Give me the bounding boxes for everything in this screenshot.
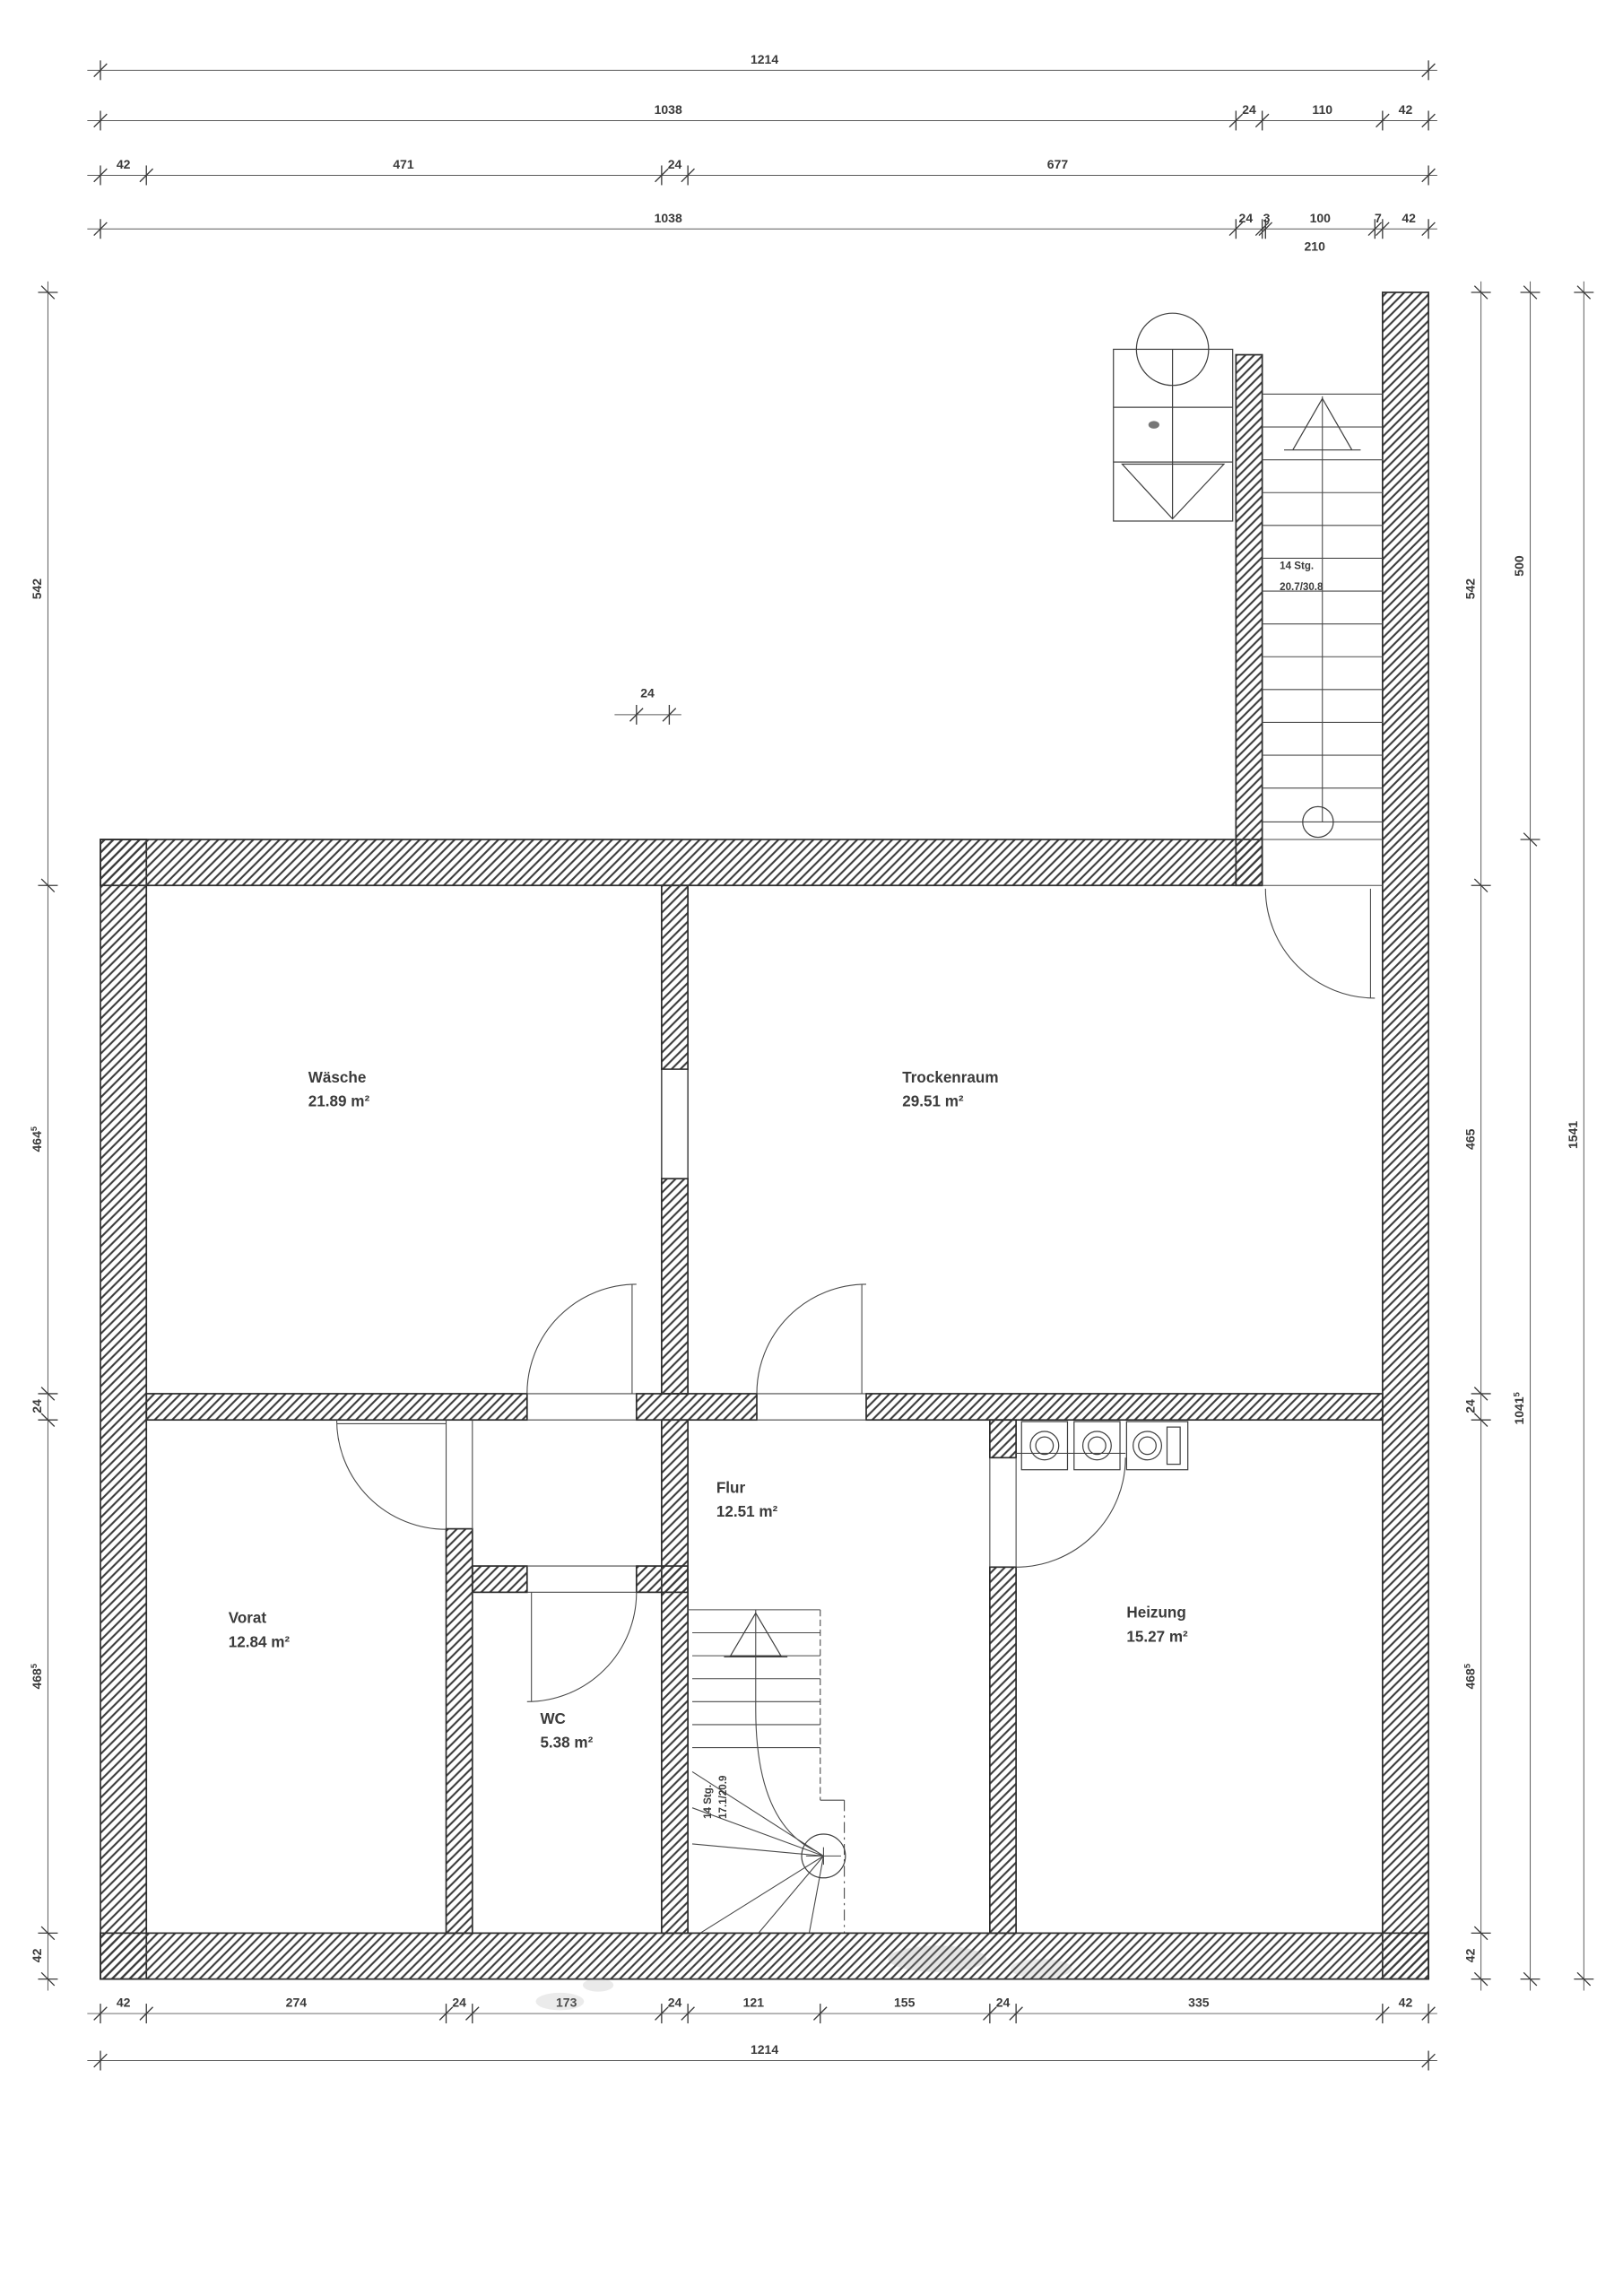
door-heizung — [1016, 1453, 1125, 1567]
dim-468-5: 4685 — [1462, 1664, 1477, 1689]
wall-top — [100, 839, 1263, 885]
dim-335: 335 — [1188, 1996, 1210, 2010]
room-name-waesche: Wäsche — [308, 1069, 367, 1086]
room-area-waesche: 21.89 m² — [308, 1093, 370, 1110]
walls — [100, 292, 1428, 1979]
plan: 14 Stg. 20.7/30.8 — [30, 52, 1593, 2070]
dim-24: 24 — [996, 1996, 1011, 2010]
wall-middle-b — [637, 1394, 757, 1420]
room-name-trockenraum: Trockenraum — [902, 1069, 998, 1086]
wall-divider-lower — [662, 1420, 688, 1933]
dim-42: 42 — [1399, 102, 1413, 117]
wall-thickness-marker: 24 — [614, 685, 681, 725]
dim-42: 42 — [1402, 211, 1416, 225]
dim-464-5: 4645 — [30, 1126, 44, 1152]
dim-468-5: 4685 — [30, 1664, 44, 1689]
dim-465: 465 — [1462, 1128, 1477, 1150]
room-name-flur: Flur — [716, 1479, 746, 1496]
chimney — [1114, 313, 1233, 521]
equipment-rect — [1167, 1427, 1181, 1464]
wall-middle-a — [146, 1394, 527, 1420]
wall-divider-mid — [662, 1178, 688, 1394]
wall-vorat — [447, 1529, 473, 1934]
wall-divider-upper — [662, 885, 688, 1069]
dim-3: 3 — [1263, 211, 1271, 225]
dim-24: 24 — [1239, 211, 1254, 225]
door-vorat — [337, 1420, 447, 1529]
dim-121: 121 — [743, 1996, 765, 2010]
dim-471: 471 — [393, 157, 414, 171]
room-area-flur: 12.51 m² — [716, 1503, 778, 1520]
dim-100: 100 — [1310, 211, 1332, 225]
washer-box — [1126, 1422, 1187, 1470]
dim-bottom: 42 274 24 173 24 121 155 24 335 42 1214 — [87, 1996, 1436, 2071]
door-shaft-trockenraum — [1265, 889, 1375, 998]
heizung-equipment — [1021, 1422, 1187, 1470]
dim-274: 274 — [286, 1996, 308, 2010]
dim-24: 24 — [668, 157, 682, 171]
dim-24: 24 — [452, 1996, 466, 2010]
room-area-wc: 5.38 m² — [540, 1735, 593, 1752]
interior-stair-label: 14 Stg. — [703, 1785, 714, 1819]
dim-500: 500 — [1512, 555, 1526, 577]
dim-155: 155 — [894, 1996, 916, 2010]
dim-42: 42 — [117, 157, 131, 171]
dim-1214-bottom: 1214 — [751, 2042, 778, 2057]
dim-42: 42 — [1399, 1996, 1413, 2010]
wall-middle-c — [866, 1394, 1383, 1420]
door-trockenraum — [757, 1284, 866, 1394]
room-name-vorat: Vorat — [229, 1610, 267, 1627]
interior-stair: 14 Stg. 17.1/20.9 — [688, 1610, 846, 1933]
door-wc — [527, 1592, 637, 1701]
dim-110: 110 — [1312, 102, 1332, 117]
room-name-heizung: Heizung — [1126, 1604, 1185, 1621]
interior-stair-ratio: 17.1/20.9 — [718, 1775, 729, 1819]
wall-wc-b — [637, 1566, 688, 1592]
wall-stair-shaft — [1236, 355, 1262, 886]
dim-24: 24 — [30, 1399, 44, 1413]
wall-heizung-a — [990, 1420, 1016, 1457]
dim-24: 24 — [1242, 102, 1256, 117]
dim-1038: 1038 — [655, 102, 682, 117]
wall-divider-light — [662, 1069, 688, 1178]
exterior-stair: 14 Stg. 20.7/30.8 — [1263, 394, 1383, 837]
dim-42: 42 — [117, 1996, 131, 2010]
dim-677: 677 — [1047, 157, 1069, 171]
wall-left — [100, 839, 146, 1979]
dim-7: 7 — [1375, 211, 1382, 225]
dim-left: 542 4645 24 4685 42 — [30, 282, 57, 1991]
thresholds — [447, 839, 1383, 1592]
room-area-trockenraum: 29.51 m² — [902, 1093, 964, 1110]
washer-box — [1021, 1422, 1067, 1470]
marker-label: 24 — [640, 685, 655, 700]
dim-1041-5: 10415 — [1512, 1392, 1526, 1424]
scan-mark — [1149, 421, 1159, 429]
dim-1038: 1038 — [655, 211, 682, 225]
dim-24: 24 — [668, 1996, 682, 2010]
dim-1214-top: 1214 — [751, 52, 778, 66]
exterior-stair-label: 14 Stg. — [1280, 561, 1314, 572]
dim-top: 1214 1038 24 110 42 42 471 24 677 1038 2… — [87, 52, 1436, 254]
room-name-wc: WC — [540, 1710, 565, 1727]
wall-heizung-b — [990, 1567, 1016, 1933]
wall-right — [1383, 292, 1428, 1979]
door-waesche — [527, 1284, 637, 1394]
room-area-vorat: 12.84 m² — [229, 1633, 291, 1650]
dim-24: 24 — [1462, 1399, 1477, 1413]
dim-542: 542 — [1462, 578, 1477, 600]
wall-wc-a — [473, 1566, 527, 1592]
floorplan-sheet: 14 Stg. 20.7/30.8 — [0, 0, 1623, 2296]
dim-542: 542 — [30, 578, 44, 600]
exterior-stair-ratio: 20.7/30.8 — [1280, 582, 1324, 593]
room-area-heizung: 15.27 m² — [1126, 1628, 1188, 1645]
dim-210: 210 — [1305, 239, 1326, 254]
wall-bottom — [100, 1933, 1428, 1979]
dim-42: 42 — [1462, 1948, 1477, 1962]
dim-right: 542 465 24 4685 42 500 10415 1541 — [1462, 282, 1593, 1991]
dim-42: 42 — [30, 1948, 44, 1962]
washer-box — [1074, 1422, 1120, 1470]
dim-1541: 1541 — [1566, 1121, 1580, 1149]
